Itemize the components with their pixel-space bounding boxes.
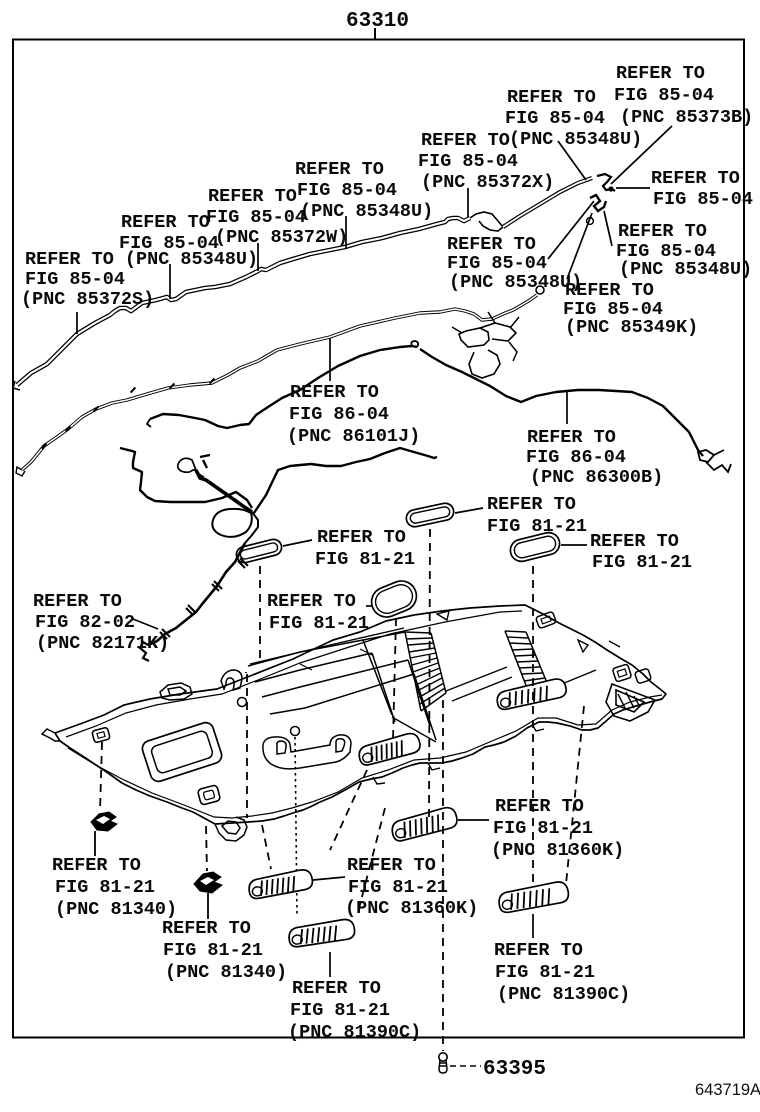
svg-text:REFER TO: REFER TO bbox=[651, 168, 740, 189]
svg-text:FIG 81-21: FIG 81-21 bbox=[55, 877, 155, 898]
svg-text:REFER TO: REFER TO bbox=[33, 591, 122, 612]
svg-text:63395: 63395 bbox=[483, 1058, 546, 1081]
svg-text:REFER TO: REFER TO bbox=[421, 130, 510, 151]
svg-text:FIG 85-04: FIG 85-04 bbox=[206, 207, 306, 228]
svg-text:FIG 81-21: FIG 81-21 bbox=[163, 940, 263, 961]
svg-text:(PNC 85349K): (PNC 85349K) bbox=[565, 317, 698, 338]
svg-text:FIG 81-21: FIG 81-21 bbox=[269, 613, 369, 634]
svg-text:63310: 63310 bbox=[346, 10, 409, 33]
svg-text:FIG 81-21: FIG 81-21 bbox=[487, 516, 587, 537]
svg-text:REFER TO: REFER TO bbox=[527, 427, 616, 448]
svg-text:FIG 85-04: FIG 85-04 bbox=[447, 253, 547, 274]
svg-text:FIG 85-04: FIG 85-04 bbox=[653, 189, 753, 210]
svg-text:(PNC 85372S): (PNC 85372S) bbox=[21, 289, 154, 310]
svg-text:(PNC 81360K): (PNC 81360K) bbox=[491, 840, 624, 861]
svg-text:(PNC 81340): (PNC 81340) bbox=[165, 962, 287, 983]
svg-text:REFER TO: REFER TO bbox=[52, 855, 141, 876]
svg-text:(PNC 85372X): (PNC 85372X) bbox=[421, 172, 554, 193]
svg-text:REFER TO: REFER TO bbox=[290, 382, 379, 403]
svg-text:REFER TO: REFER TO bbox=[590, 531, 679, 552]
svg-text:FIG 85-04: FIG 85-04 bbox=[505, 108, 605, 129]
svg-text:FIG 85-04: FIG 85-04 bbox=[614, 85, 714, 106]
svg-text:(PNC 85372W): (PNC 85372W) bbox=[215, 227, 348, 248]
svg-text:FIG 82-02: FIG 82-02 bbox=[35, 612, 135, 633]
svg-text:(PNC 81340): (PNC 81340) bbox=[55, 899, 177, 920]
svg-text:(PNC 85348U): (PNC 85348U) bbox=[449, 272, 582, 293]
svg-text:FIG 86-04: FIG 86-04 bbox=[289, 404, 389, 425]
svg-text:(PNC 85348U): (PNC 85348U) bbox=[300, 201, 433, 222]
svg-text:(PNC 81360K): (PNC 81360K) bbox=[345, 898, 478, 919]
svg-text:FIG 81-21: FIG 81-21 bbox=[290, 1000, 390, 1021]
svg-text:FIG 81-21: FIG 81-21 bbox=[592, 552, 692, 573]
svg-text:REFER TO: REFER TO bbox=[295, 159, 384, 180]
svg-text:REFER TO: REFER TO bbox=[447, 234, 536, 255]
svg-text:(PNC 85373B): (PNC 85373B) bbox=[620, 107, 753, 128]
svg-text:REFER TO: REFER TO bbox=[317, 527, 406, 548]
svg-text:REFER TO: REFER TO bbox=[121, 212, 210, 233]
svg-text:643719A: 643719A bbox=[695, 1081, 760, 1099]
svg-text:FIG 85-04: FIG 85-04 bbox=[25, 269, 125, 290]
svg-text:(PNC 86300B): (PNC 86300B) bbox=[530, 467, 663, 488]
svg-text:(PNC 81390C): (PNC 81390C) bbox=[497, 984, 630, 1005]
svg-text:FIG 81-21: FIG 81-21 bbox=[493, 818, 593, 839]
svg-text:FIG 81-21: FIG 81-21 bbox=[348, 877, 448, 898]
svg-text:REFER TO (PNC 85348U): REFER TO (PNC 85348U) bbox=[25, 249, 258, 270]
svg-text:FIG 85-04: FIG 85-04 bbox=[297, 180, 397, 201]
svg-text:(PNC 85348U): (PNC 85348U) bbox=[619, 259, 752, 280]
svg-text:REFER TO: REFER TO bbox=[618, 221, 707, 242]
svg-text:REFER TO: REFER TO bbox=[347, 855, 436, 876]
svg-text:FIG 81-21: FIG 81-21 bbox=[315, 549, 415, 570]
svg-text:REFER TO: REFER TO bbox=[495, 796, 584, 817]
svg-text:REFER TO: REFER TO bbox=[507, 87, 596, 108]
svg-text:FIG 81-21: FIG 81-21 bbox=[495, 962, 595, 983]
svg-text:(PNC 82171K): (PNC 82171K) bbox=[36, 633, 169, 654]
svg-text:(PNC 86101J): (PNC 86101J) bbox=[287, 426, 420, 447]
svg-text:(PNC 85348U): (PNC 85348U) bbox=[509, 129, 642, 150]
svg-text:(PNC 81390C): (PNC 81390C) bbox=[288, 1022, 421, 1043]
svg-text:FIG 86-04: FIG 86-04 bbox=[526, 447, 626, 468]
svg-text:REFER TO: REFER TO bbox=[616, 63, 705, 84]
svg-text:REFER TO: REFER TO bbox=[162, 918, 251, 939]
svg-text:REFER TO: REFER TO bbox=[292, 978, 381, 999]
svg-text:REFER TO: REFER TO bbox=[208, 186, 297, 207]
svg-text:REFER TO: REFER TO bbox=[494, 940, 583, 961]
svg-text:REFER TO: REFER TO bbox=[267, 591, 356, 612]
svg-text:REFER TO: REFER TO bbox=[487, 494, 576, 515]
svg-text:FIG 85-04: FIG 85-04 bbox=[418, 151, 518, 172]
